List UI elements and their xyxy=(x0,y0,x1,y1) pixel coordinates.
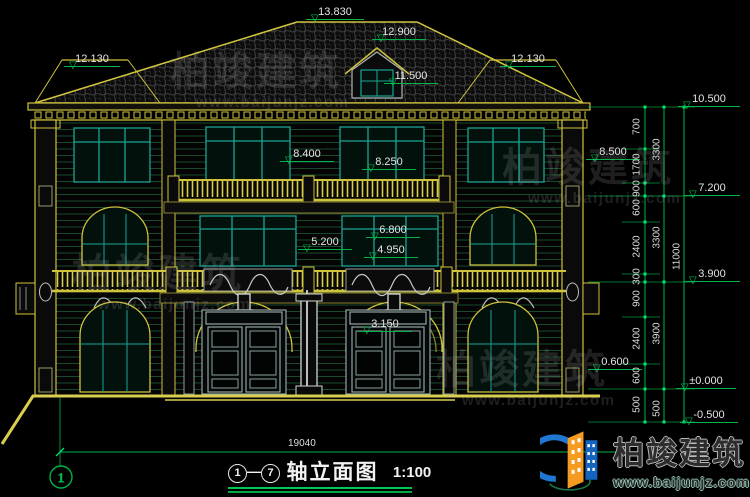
level-triangle-icon: ▽ xyxy=(369,252,377,262)
watermark-url: www.baijunjz.com xyxy=(462,393,615,408)
watermark-company: 柏竣建筑 xyxy=(436,350,615,391)
level-annotation: 7.200▽ xyxy=(684,182,740,196)
level-annotation: 12.130▽ xyxy=(500,53,556,67)
level-triangle-icon: ▽ xyxy=(367,164,375,174)
level-annotation: ±0.000▽ xyxy=(676,375,736,389)
level-annotation: 8.250▽ xyxy=(362,156,416,170)
axis-start-bubble: 1 xyxy=(228,464,247,483)
watermark-company: 柏竣建筑 xyxy=(170,52,349,93)
level-triangle-icon: ▽ xyxy=(389,78,397,88)
level-annotation: 3.150▽ xyxy=(358,318,412,332)
level-triangle-icon: ▽ xyxy=(505,61,513,71)
level-annotation: 13.830▽ xyxy=(306,6,364,20)
level-annotation: 10.500▽ xyxy=(678,93,740,107)
level-triangle-icon: ▽ xyxy=(683,101,691,111)
level-annotation: 6.800▽ xyxy=(366,224,420,238)
level-triangle-icon: ▽ xyxy=(285,156,293,166)
level-annotation: 5.200▽ xyxy=(298,236,352,250)
level-annotation: 4.950▽ xyxy=(364,244,418,258)
title-scale: 1:100 xyxy=(393,464,431,481)
level-triangle-icon: ▽ xyxy=(681,383,689,393)
level-triangle-icon: ▽ xyxy=(377,34,385,44)
watermark-company: 柏竣建筑 xyxy=(72,254,251,295)
watermark: 柏竣建筑www.baijunjz.com xyxy=(436,350,615,408)
watermark-url: www.baijunjz.com xyxy=(196,95,349,110)
axis-range-dash: — xyxy=(247,463,261,479)
axis-end-bubble: 7 xyxy=(261,464,280,483)
level-triangle-icon: ▽ xyxy=(689,276,697,286)
title-underline xyxy=(228,487,412,489)
watermark-url: www.baijunjz.com xyxy=(98,297,251,312)
brand-logo: 柏竣建筑 www.baijunjz.com xyxy=(540,420,750,497)
level-triangle-icon: ▽ xyxy=(303,244,311,254)
cad-elevation-sheet: 1 13.830▽12.130▽12.900▽11.500▽12.130▽10.… xyxy=(0,0,750,497)
level-triangle-icon: ▽ xyxy=(311,14,319,24)
level-annotation: 12.900▽ xyxy=(372,26,426,40)
vertical-dimension: 3900 xyxy=(652,312,663,356)
vertical-dimension: 900 xyxy=(632,277,643,321)
watermark: 柏竣建筑www.baijunjz.com xyxy=(72,254,251,312)
overall-width-dim: 19040 xyxy=(288,438,316,449)
level-triangle-icon: ▽ xyxy=(363,326,371,336)
level-triangle-icon: ▽ xyxy=(371,232,379,242)
level-triangle-icon: ▽ xyxy=(69,61,77,71)
vertical-dimension: 3300 xyxy=(652,216,663,260)
watermark-company: 柏竣建筑 xyxy=(502,148,681,189)
level-annotation: 11.500▽ xyxy=(384,70,438,84)
title-underline-2 xyxy=(228,491,412,493)
drawing-title: 1—7 轴立面图 1:100 xyxy=(228,456,431,493)
brand-name: 柏竣建筑 xyxy=(613,428,750,473)
watermark: 柏竣建筑www.baijunjz.com xyxy=(170,52,349,110)
level-annotation: 8.400▽ xyxy=(280,148,334,162)
level-annotation: 3.900▽ xyxy=(684,268,740,282)
watermark: 柏竣建筑www.baijunjz.com xyxy=(502,148,681,206)
brand-logo-icon xyxy=(540,426,609,492)
vertical-dimension: 11000 xyxy=(672,235,683,279)
brand-url: www.baijunjz.com xyxy=(613,474,750,490)
level-annotation: 12.130▽ xyxy=(64,53,120,67)
level-triangle-icon: ▽ xyxy=(689,190,697,200)
watermark-url: www.baijunjz.com xyxy=(528,191,681,206)
title-text: 轴立面图 xyxy=(286,461,378,484)
